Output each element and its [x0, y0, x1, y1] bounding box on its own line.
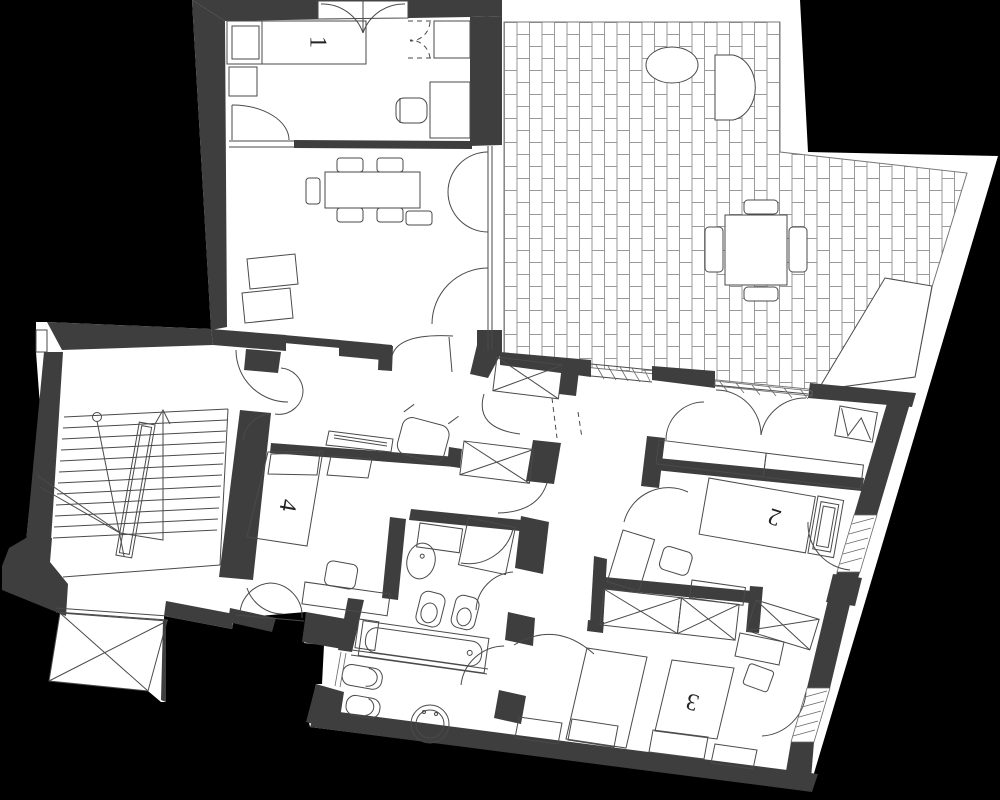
- svg-text:1: 1: [304, 36, 330, 48]
